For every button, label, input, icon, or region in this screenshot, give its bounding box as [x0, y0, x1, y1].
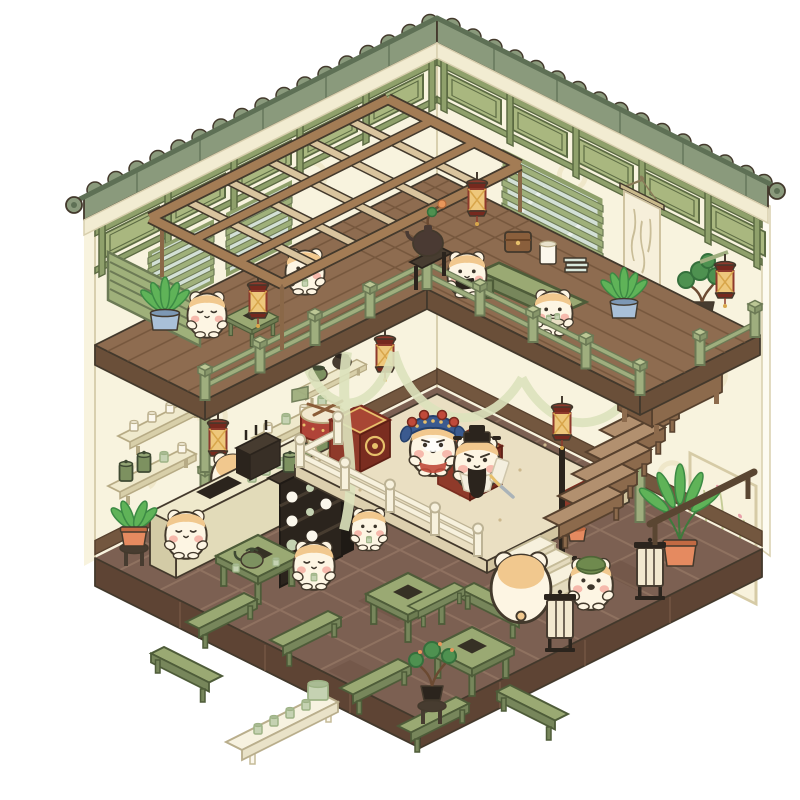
strolling-hamster — [491, 552, 551, 622]
ridge-curl-right — [769, 183, 785, 199]
tea-house-illustration — [0, 0, 800, 800]
loft-canister — [540, 241, 556, 264]
illustration-canvas: Hamster tea house — isometric cutaway il… — [0, 0, 800, 800]
loft-papers — [564, 258, 588, 272]
balcony-snoozer-hamster — [185, 292, 228, 338]
capped-guest-hamster — [567, 557, 615, 610]
table-guest-hamster — [291, 541, 337, 590]
counter-towel — [292, 387, 308, 402]
loft-satchel — [505, 232, 531, 252]
stage-watcher-hamster — [349, 508, 389, 550]
ridge-curl-left — [66, 197, 82, 213]
counter-guest-hamster — [163, 510, 209, 559]
